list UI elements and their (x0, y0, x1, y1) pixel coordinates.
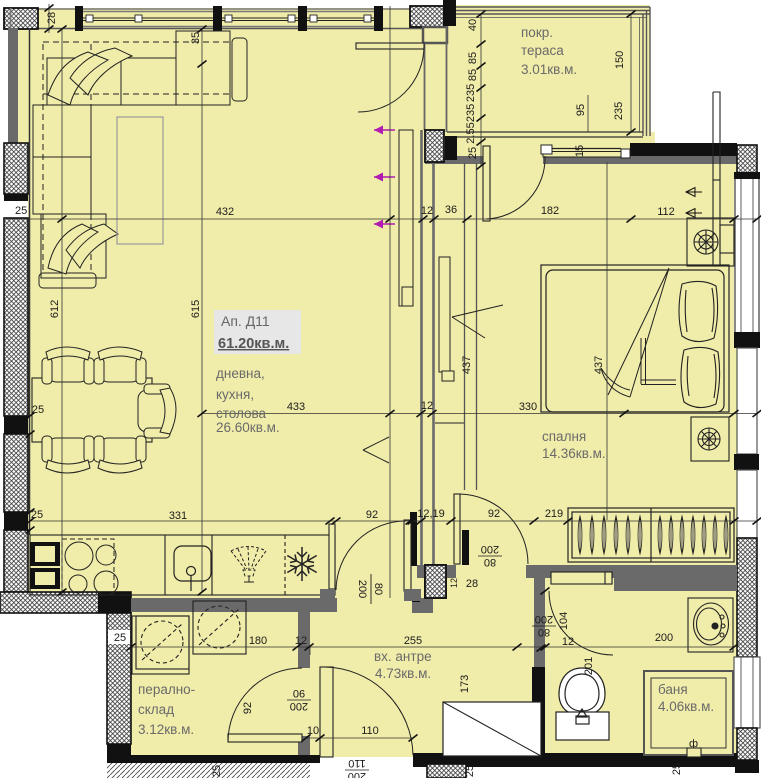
svg-text:110: 110 (348, 757, 366, 769)
svg-text:80: 80 (484, 556, 496, 568)
svg-text:235: 235 (465, 84, 477, 102)
svg-text:85: 85 (467, 52, 479, 64)
svg-text:25: 25 (15, 205, 27, 217)
svg-text:перално-: перално- (138, 682, 195, 697)
svg-text:тераса: тераса (521, 43, 564, 58)
svg-text:92: 92 (242, 702, 254, 714)
svg-text:180: 180 (249, 635, 267, 647)
svg-text:200: 200 (535, 613, 553, 625)
svg-text:25: 25 (671, 763, 683, 775)
svg-text:баня: баня (658, 682, 688, 697)
svg-text:14.36кв.м.: 14.36кв.м. (542, 446, 606, 461)
svg-text:437: 437 (461, 356, 473, 374)
svg-text:3.01кв.м.: 3.01кв.м. (521, 62, 577, 77)
svg-text:12: 12 (295, 635, 307, 647)
svg-text:4.06кв.м.: 4.06кв.м. (658, 699, 714, 714)
svg-text:12: 12 (449, 578, 459, 588)
svg-text:2.55: 2.55 (465, 122, 477, 143)
svg-text:331: 331 (169, 510, 187, 522)
svg-text:92: 92 (366, 509, 378, 521)
svg-text:столова: столова (216, 406, 267, 421)
svg-text:200: 200 (348, 770, 366, 778)
svg-text:12: 12 (421, 400, 433, 412)
svg-text:95: 95 (575, 104, 587, 116)
svg-text:40: 40 (467, 19, 479, 31)
svg-text:25: 25 (211, 765, 223, 777)
svg-text:112: 112 (657, 206, 675, 218)
svg-text:200: 200 (481, 543, 499, 555)
svg-text:спалня: спалня (542, 429, 586, 444)
svg-text:85: 85 (467, 69, 479, 81)
svg-text:235: 235 (613, 102, 625, 120)
svg-text:36: 36 (445, 204, 457, 216)
svg-text:25: 25 (467, 147, 479, 159)
svg-text:200: 200 (655, 632, 673, 644)
svg-text:182: 182 (541, 205, 559, 217)
svg-text:25: 25 (31, 509, 43, 521)
svg-text:25: 25 (32, 404, 44, 416)
svg-text:кухня,: кухня, (216, 387, 254, 402)
svg-text:200: 200 (290, 700, 308, 712)
svg-text:12,19: 12,19 (417, 508, 445, 520)
svg-text:Ап. Д11: Ап. Д11 (221, 313, 270, 329)
svg-text:92: 92 (488, 508, 500, 520)
svg-text:200: 200 (356, 580, 368, 598)
svg-text:покр.: покр. (521, 25, 553, 40)
svg-text:12: 12 (421, 205, 433, 217)
svg-text:219: 219 (545, 508, 563, 520)
svg-text:28: 28 (46, 12, 58, 24)
svg-text:склад: склад (138, 702, 174, 717)
svg-text:80: 80 (538, 626, 550, 638)
svg-text:вх. антре: вх. антре (374, 649, 432, 664)
svg-text:90: 90 (293, 687, 305, 699)
svg-text:4.73кв.м.: 4.73кв.м. (375, 666, 431, 681)
svg-text:432: 432 (216, 206, 234, 218)
svg-text:235: 235 (465, 104, 477, 122)
svg-text:80: 80 (372, 583, 384, 595)
svg-text:35: 35 (190, 32, 202, 44)
svg-text:3.12кв.м.: 3.12кв.м. (138, 722, 194, 737)
svg-text:433: 433 (287, 401, 305, 413)
svg-text:61.20кв.м.: 61.20кв.м. (218, 336, 289, 352)
svg-text:25: 25 (114, 632, 126, 644)
svg-text:25: 25 (464, 765, 476, 777)
svg-text:615: 615 (190, 300, 202, 318)
svg-text:255: 255 (404, 635, 422, 647)
svg-text:612: 612 (49, 300, 61, 318)
svg-text:104: 104 (558, 612, 570, 630)
svg-text:10: 10 (307, 725, 319, 737)
svg-text:дневна,: дневна, (216, 366, 265, 381)
svg-text:150: 150 (614, 51, 626, 69)
svg-text:201: 201 (583, 657, 595, 675)
svg-text:173: 173 (459, 675, 471, 693)
svg-text:15: 15 (574, 145, 586, 157)
svg-text:437: 437 (593, 356, 605, 374)
svg-text:330: 330 (519, 401, 537, 413)
svg-text:28: 28 (466, 578, 478, 590)
svg-text:12: 12 (562, 636, 574, 648)
svg-text:26.60кв.м.: 26.60кв.м. (216, 420, 280, 435)
svg-text:110: 110 (361, 725, 379, 737)
